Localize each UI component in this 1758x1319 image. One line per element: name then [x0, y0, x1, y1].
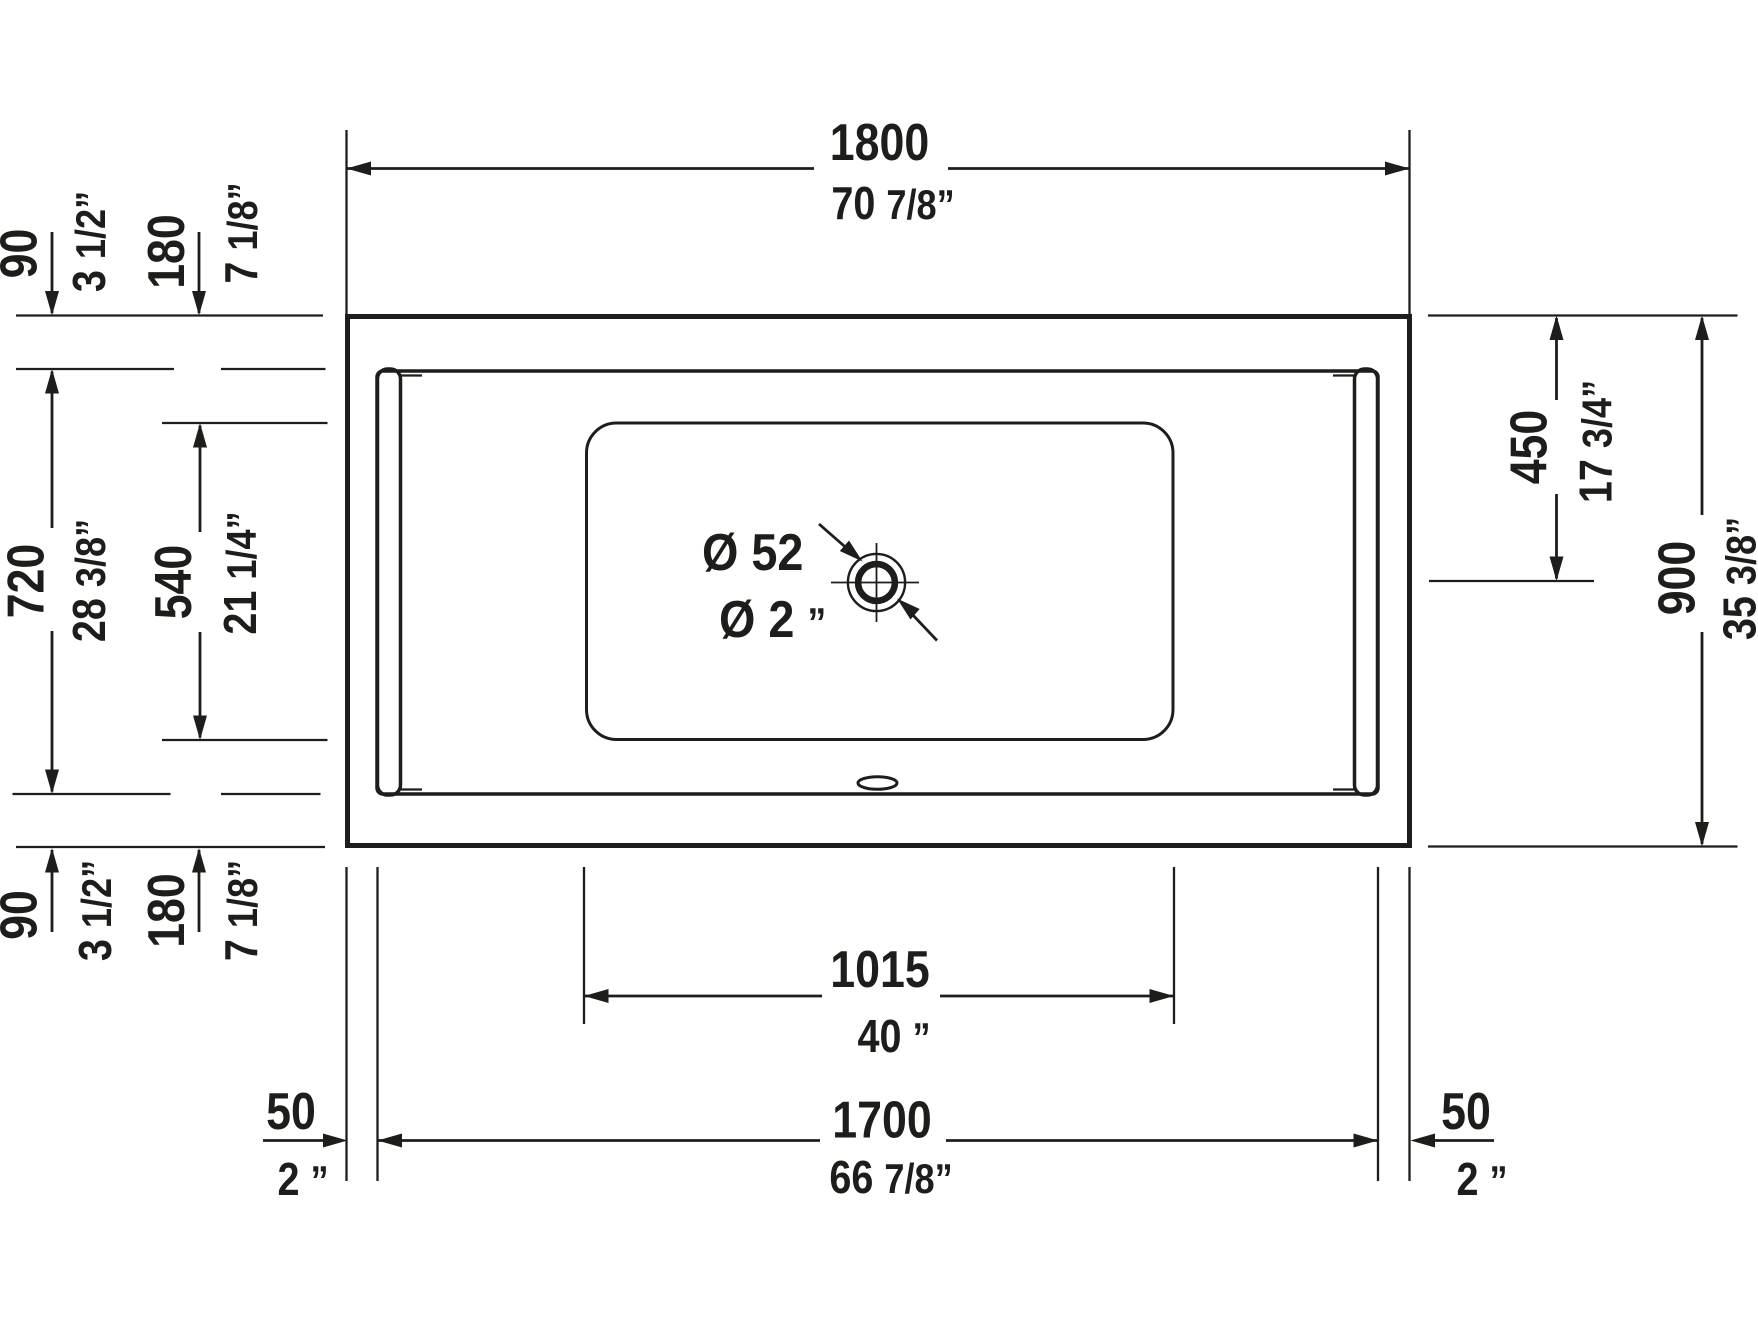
svg-text:21 1/4”: 21 1/4”	[215, 511, 266, 634]
svg-text:2 ”: 2 ”	[1456, 1154, 1507, 1205]
svg-text:900: 900	[1648, 541, 1706, 616]
svg-text:7 1/8”: 7 1/8”	[216, 860, 267, 961]
svg-text:7 1/8”: 7 1/8”	[216, 182, 267, 283]
svg-text:540: 540	[145, 545, 203, 620]
svg-text:720: 720	[0, 544, 55, 619]
svg-text:3 1/2”: 3 1/2”	[70, 860, 121, 961]
svg-text:28 3/8”: 28 3/8”	[64, 519, 115, 642]
svg-text:70 7/8”: 70 7/8”	[831, 178, 954, 229]
svg-text:50: 50	[1441, 1083, 1491, 1141]
svg-text:90: 90	[0, 229, 48, 279]
svg-text:50: 50	[266, 1083, 316, 1141]
svg-text:Ø 2 ”: Ø 2 ”	[719, 591, 826, 649]
svg-text:2 ”: 2 ”	[277, 1154, 328, 1205]
svg-text:1015: 1015	[830, 941, 929, 999]
svg-text:90: 90	[0, 890, 48, 940]
svg-text:180: 180	[138, 873, 196, 948]
svg-text:1700: 1700	[832, 1091, 931, 1149]
svg-text:1800: 1800	[830, 114, 929, 172]
svg-text:66 7/8”: 66 7/8”	[829, 1152, 952, 1203]
svg-text:Ø 52: Ø 52	[702, 524, 803, 582]
svg-text:35 3/8”: 35 3/8”	[1715, 517, 1758, 640]
svg-text:3 1/2”: 3 1/2”	[64, 191, 115, 292]
svg-text:40 ”: 40 ”	[857, 1011, 930, 1062]
svg-text:17 3/4”: 17 3/4”	[1571, 380, 1622, 503]
svg-text:450: 450	[1500, 410, 1558, 485]
svg-text:180: 180	[138, 214, 196, 289]
